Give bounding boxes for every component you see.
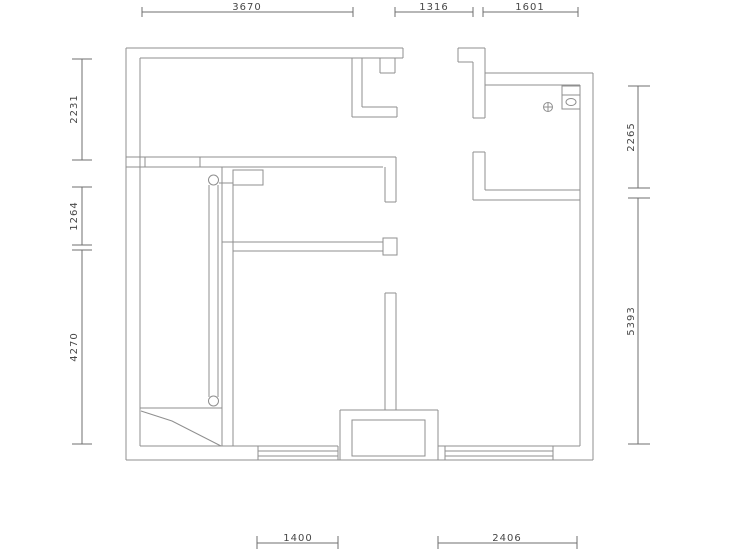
- bottom-wall: [126, 446, 593, 460]
- dim-label-bottom-1: 1400: [283, 533, 312, 544]
- right-wall: [580, 73, 593, 460]
- closet-diagonal: [140, 408, 222, 446]
- dim-label-right-1: 2265: [626, 122, 637, 151]
- duct-box: [380, 58, 395, 73]
- outer-walls: [126, 48, 593, 460]
- dim-right-5393: 5393: [626, 198, 650, 444]
- wall-stub-upper: [385, 157, 396, 202]
- dim-top-1316: 1316: [395, 2, 473, 17]
- window-bottom-left: [258, 446, 338, 460]
- dim-label-left-3: 4270: [69, 332, 80, 361]
- closet-wall: [219, 167, 263, 446]
- dim-label-left-1: 2231: [69, 94, 80, 123]
- floor-drain-icon: [544, 103, 553, 112]
- wall-end-cap: [383, 238, 397, 255]
- top-right-wall: [485, 73, 593, 85]
- dim-label-bottom-2: 2406: [492, 533, 521, 544]
- dim-left-1264: 1264: [69, 187, 92, 245]
- kitchen-partition: [352, 58, 397, 117]
- dim-label-left-2: 1264: [69, 201, 80, 230]
- bathroom-wall: [473, 152, 580, 200]
- dim-bottom-1400: 1400: [257, 533, 338, 549]
- left-wall: [126, 48, 140, 460]
- dim-bottom-2406: 2406: [438, 533, 577, 549]
- dim-label-right-2: 5393: [626, 306, 637, 335]
- bedroom-partition-wall: [126, 157, 396, 202]
- top-wall: [126, 48, 403, 58]
- floor-plan-svg: 3670 1316 1601 2231 1264 4270 2265 5393 …: [0, 0, 740, 555]
- dim-left-4270: 4270: [69, 250, 92, 444]
- dim-left-2231: 2231: [69, 59, 92, 160]
- floor-plan-page: 3670 1316 1601 2231 1264 4270 2265 5393 …: [0, 0, 740, 555]
- entry-wall-block: [458, 48, 485, 118]
- middle-partition-wall: [222, 238, 397, 410]
- dim-right-2265: 2265: [626, 86, 650, 188]
- dim-label-top-2: 1316: [419, 2, 448, 13]
- window-bottom-right: [445, 446, 553, 460]
- balcony-box: [340, 410, 438, 460]
- dim-top-3670: 3670: [142, 2, 353, 17]
- dim-label-top-1: 3670: [232, 2, 261, 13]
- closet-box: [233, 170, 263, 185]
- dim-top-1601: 1601: [483, 2, 578, 17]
- wardrobe-rail: [209, 175, 219, 406]
- dim-label-top-3: 1601: [515, 2, 544, 13]
- washbasin-box: [562, 86, 580, 109]
- wall-stub-lower: [385, 293, 396, 410]
- balcony-box-inner: [352, 420, 425, 456]
